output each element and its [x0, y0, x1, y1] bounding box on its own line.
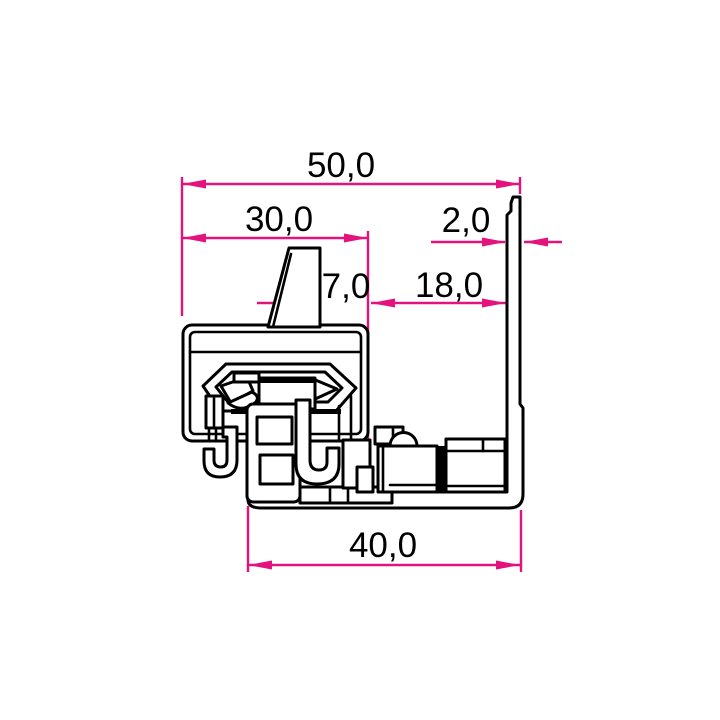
- gasket-center-top-band: [259, 378, 315, 383]
- arrowhead-right-icon: [496, 180, 520, 189]
- arrowhead-left-icon: [182, 234, 206, 243]
- arrowhead-right-icon: [344, 234, 368, 243]
- arrowhead-right-icon: [496, 561, 520, 570]
- right-block: [446, 439, 505, 492]
- block-gap-band: [438, 446, 445, 492]
- arrowhead-left-icon: [182, 180, 206, 189]
- gasket-ledge-block: [234, 373, 259, 382]
- dim-label-wall-thickness: 2,0: [442, 201, 491, 240]
- dim-label-gap-width: 18,0: [415, 266, 483, 305]
- cap-right-foot-step: [357, 467, 373, 492]
- dim-label-fin-offset: 7,0: [322, 267, 371, 306]
- dim-label-base-width: 40,0: [349, 526, 417, 565]
- dome-cap: [390, 433, 417, 447]
- drawing-canvas: 50,0 30,0 2,0 7,0 18,0 40,0: [0, 0, 720, 720]
- c-channel-pocket-top: [257, 417, 292, 444]
- arrowhead-left-icon: [371, 299, 395, 308]
- arrowhead-right-icon: [482, 299, 506, 308]
- c-channel-pocket-bottom: [260, 455, 293, 484]
- arrowhead-left-icon: [248, 561, 272, 570]
- profile-geometry-layer: [183, 197, 523, 508]
- dim-label-cap-width: 30,0: [245, 200, 313, 239]
- arrowhead-left-icon: [524, 238, 548, 247]
- dim-label-total-width: 50,0: [307, 146, 375, 185]
- technical-drawing: 50,0 30,0 2,0 7,0 18,0 40,0: [0, 0, 720, 720]
